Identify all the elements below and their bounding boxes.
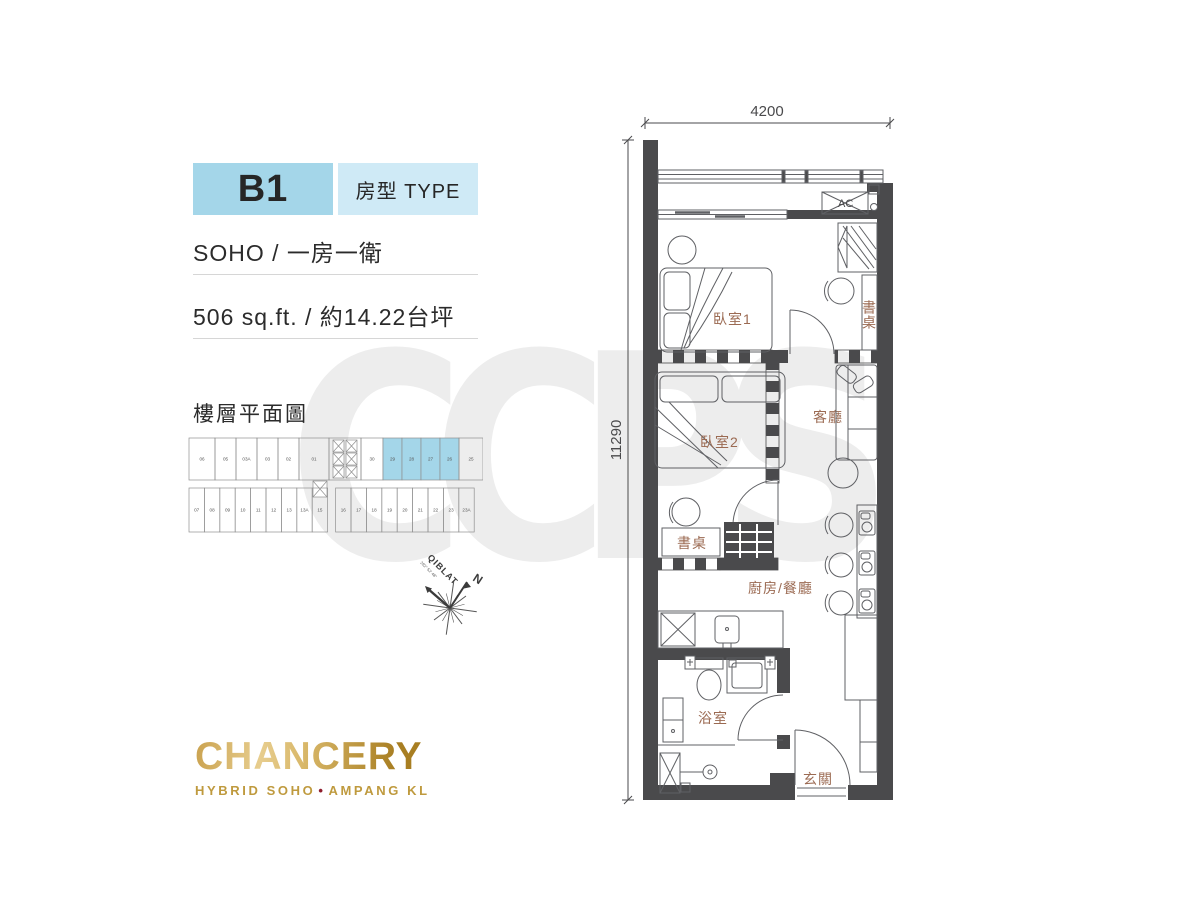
keyplan-unit-label: 19 <box>387 508 393 513</box>
brand-name: CHANCERY <box>195 736 430 779</box>
unit-area-text: 506 sq.ft. / 約14.22台坪 <box>193 298 454 332</box>
keyplan-unit-label: 30 <box>369 457 375 462</box>
balcony-window-icon <box>658 170 883 183</box>
dining-counter-icon <box>857 505 877 618</box>
keyplan-unit-label: 26 <box>447 457 453 462</box>
keyplan-unit-label: 25 <box>468 457 474 462</box>
keyplan-unit-label: 27 <box>428 457 434 462</box>
keyplan-unit-label: 06 <box>199 457 205 462</box>
brand-logo: CHANCERY HYBRID SOHO•AMPANG KL <box>195 736 430 798</box>
bedroom1-desk-label: 書桌 <box>861 300 877 330</box>
keyplan-unit-label: 08 <box>210 508 216 513</box>
divider-line <box>193 338 478 339</box>
side-table-icon <box>668 236 696 264</box>
keyplan-unit-label: 11 <box>256 508 261 513</box>
keyplan-unit-label: 20 <box>402 508 408 513</box>
dim-height-label: 11290 <box>608 420 625 461</box>
bar-stools-icon <box>825 513 853 615</box>
keyplan-unit-label: 21 <box>418 508 424 513</box>
keyplan-unit-label: 18 <box>372 508 378 513</box>
tagline-dot: • <box>318 783 325 798</box>
keyplan-unit-label: 29 <box>390 457 396 462</box>
dim-width-label: 4200 <box>750 103 783 120</box>
chair-back-icon <box>824 281 828 301</box>
keyplan-unit-label: 03 <box>265 457 271 462</box>
door-arc-bedroom1 <box>790 310 834 354</box>
bedroom1-label: 臥室1 <box>713 311 752 327</box>
unit-type-badge: 房型 TYPE <box>338 163 478 215</box>
floor-plan-drawing: 4200 11290 <box>585 95 905 820</box>
bathroom-label: 浴室 <box>698 710 728 726</box>
keyplan-unit-label: 23A <box>462 508 471 513</box>
brand-tagline: HYBRID SOHO•AMPANG KL <box>195 783 430 798</box>
keyplan-unit-label: 15 <box>317 508 323 513</box>
door-arc-bathroom <box>738 695 783 740</box>
bedroom2-label: 臥室2 <box>700 434 739 450</box>
ac-label: AC <box>838 198 853 210</box>
desk2-label: 書桌 <box>677 535 707 551</box>
dining-set-icon <box>724 522 774 560</box>
compass-icon: N QIBLAT 292° 52' 48" <box>398 546 502 656</box>
keyplan-unit-label: 13A <box>300 508 309 513</box>
kitchen-label: 廚房/餐廳 <box>748 580 813 596</box>
keyplan-unit-label: 09 <box>225 508 231 513</box>
keyplan-unit-label: 07 <box>194 508 200 513</box>
unit-code-badge: B1 <box>193 163 333 215</box>
keyplan-unit-label: 22 <box>433 508 439 513</box>
dimension-height <box>622 136 634 804</box>
keyplan-unit-label: 17 <box>356 508 362 513</box>
window-band-icon <box>658 210 787 219</box>
desk2-chair-icon <box>672 498 700 526</box>
keyplan-unit-label: 13 <box>287 508 293 513</box>
foyer-label: 玄關 <box>803 771 833 787</box>
tagline-left: HYBRID SOHO <box>195 783 315 798</box>
foyer-cabinet-icon <box>845 615 877 772</box>
door-arc-bedroom2 <box>733 480 778 525</box>
bed2-icon <box>655 372 785 468</box>
tagline-right: AMPANG KL <box>329 783 430 798</box>
keyplan-unit-label: 02 <box>286 457 292 462</box>
keyplan-unit-label: 01 <box>311 457 317 462</box>
shower-tray-icon <box>727 658 767 693</box>
keyplan-unit-label: 23 <box>449 508 455 513</box>
toilet-icon <box>695 658 723 700</box>
keyplan-unit-label: 05 <box>223 457 229 462</box>
compass-ray <box>446 608 450 635</box>
unit-layout-text: SOHO / 一房一衛 <box>193 234 383 268</box>
floor-keyplan-diagram: 060503A030201302928272625070809101112131… <box>187 424 483 536</box>
divider-line <box>193 274 478 275</box>
north-label: N <box>470 571 485 587</box>
living-label: 客廳 <box>813 409 843 425</box>
kitchen-counter-icon <box>658 611 783 648</box>
keyplan-unit-label: 10 <box>240 508 246 513</box>
vanity-icon <box>663 698 683 742</box>
keyplan-unit-label: 12 <box>271 508 277 513</box>
bed-icon <box>660 268 772 352</box>
desk-chair-icon <box>828 278 854 304</box>
keyplan-unit-label: 03A <box>242 457 251 462</box>
coffee-table-icon <box>828 458 858 488</box>
poster-canvas: CCPS B1 房型 TYPE SOHO / 一房一衛 506 sq.ft. /… <box>0 0 1200 900</box>
keyplan-unit-label: 16 <box>341 508 347 513</box>
compass-ray <box>450 608 477 612</box>
qiblat-arrow-icon: QIBLAT 292° 52' 48" <box>419 552 460 608</box>
wardrobe-icon <box>838 223 877 272</box>
keyplan-unit-label: 28 <box>409 457 415 462</box>
